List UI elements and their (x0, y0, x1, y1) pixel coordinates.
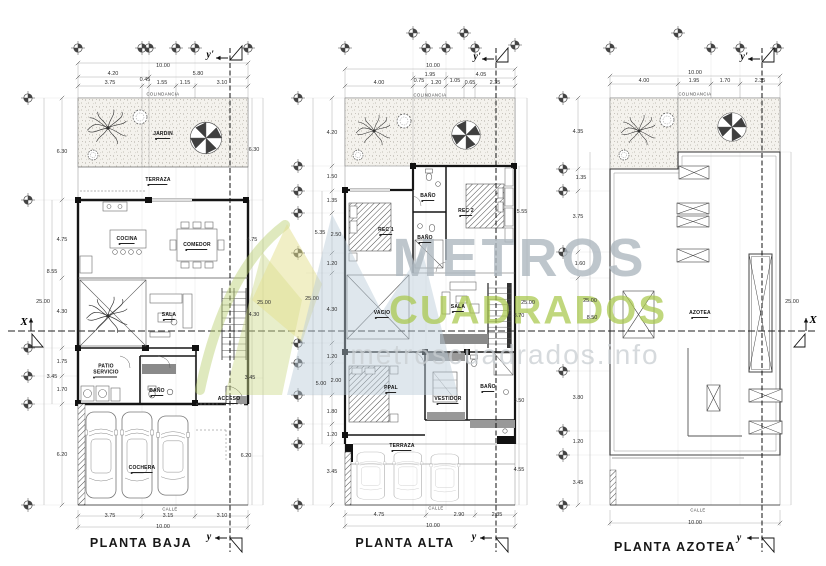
architectural-drawing: METROS CUADRADOS metroscuadrados.info X … (0, 0, 826, 566)
dim-label: 3.75 (573, 214, 584, 220)
dim-label: 25.00 (257, 300, 271, 306)
room-label-cocina: COCINA (117, 236, 138, 242)
dim-label: 4.05 (476, 72, 487, 78)
axis-x-right: X (809, 314, 816, 326)
dim-label: 25.00 (305, 296, 319, 302)
room-label-sala: SALA (162, 312, 176, 318)
plan-title-alta: PLANTA ALTA (355, 536, 454, 550)
colindancia-label: COLINDANCIA (413, 93, 446, 98)
dim-label: 1.35 (576, 175, 587, 181)
dim-label: 1.95 (689, 78, 700, 84)
dim-label: 3.10 (217, 513, 228, 519)
axis-y: y (207, 532, 211, 543)
axis-y: y (472, 532, 476, 543)
dim-label: 2.35 (492, 512, 503, 518)
dim-label: 1.20 (327, 354, 338, 360)
room-label-acceso: ACCESO (218, 396, 241, 402)
room-label-bano: BAÑO (480, 384, 496, 390)
colindancia-label: COLINDANCIA (678, 92, 711, 97)
dim-label: 5.35 (315, 230, 326, 236)
dim-label: 2.35 (755, 78, 766, 84)
dim-label: 1.35 (327, 198, 338, 204)
dim-label: 4.30 (249, 312, 260, 318)
dim-label: 4.30 (57, 309, 68, 315)
room-label-azotea: AZOTEA (689, 310, 711, 316)
dim-label: 2.00 (331, 378, 342, 384)
dim-label: 1.20 (431, 80, 442, 86)
plan-title-baja: PLANTA BAJA (90, 536, 192, 550)
dim-label: 6.30 (57, 149, 68, 155)
room-label-cochera: COCHERA (129, 465, 156, 471)
dim-label: 5.00 (316, 381, 327, 387)
dim-label: 3.75 (105, 513, 116, 519)
dim-label: 0.45 (140, 77, 151, 83)
dim-label: 4.75 (247, 237, 258, 243)
calle-label: CALLE (428, 506, 443, 511)
dim-label: 0.65 (465, 80, 476, 86)
dim-label: 3.10 (217, 80, 228, 86)
dim-label: 1.95 (425, 72, 436, 78)
dim-label: 1.75 (57, 359, 68, 365)
axis-y-prime: y' (206, 50, 213, 61)
dim-label: 1.50 (327, 174, 338, 180)
room-label-sala: SALA (451, 304, 465, 310)
dim-label: 25.00 (583, 298, 597, 304)
dim-label: 3.45 (47, 374, 58, 380)
dim-label: 5.55 (517, 209, 528, 215)
axis-x-left: X (20, 316, 27, 328)
dim-label: 4.00 (639, 78, 650, 84)
dim-label: 2.50 (331, 232, 342, 238)
dim-label: 10.00 (426, 63, 440, 69)
room-label-rec1: REC 1 (378, 227, 394, 233)
dim-label: 1.70 (720, 78, 731, 84)
dim-label: 1.15 (180, 80, 191, 86)
dim-label: 10.00 (156, 524, 170, 530)
dim-label: 10.00 (688, 70, 702, 76)
dim-label: 8.50 (587, 315, 598, 321)
dim-label: 1.60 (575, 261, 586, 267)
dim-label: 0.75 (414, 78, 425, 84)
dim-label: 3.45 (327, 469, 338, 475)
dim-label: 4.75 (57, 237, 68, 243)
dim-label: 1.05 (450, 78, 461, 84)
room-label-terraza: TERRAZA (389, 443, 414, 449)
room-label-bano: BAÑO (149, 388, 165, 394)
dim-label: 25.00 (36, 299, 50, 305)
dim-label: 3.45 (573, 480, 584, 486)
plan-title-azotea: PLANTA AZOTEA (614, 540, 736, 554)
dim-label: 1.70 (57, 387, 68, 393)
dim-label: 25.00 (521, 300, 535, 306)
colindancia-label: COLINDANCIA (146, 92, 179, 97)
dim-label: 3.45 (245, 375, 256, 381)
dim-label: 2.90 (454, 512, 465, 518)
drawing-labels: X X y' y PLANTA BAJA COLINDANCIA CALLE 1… (0, 0, 826, 566)
dim-label: 6.20 (241, 453, 252, 459)
axis-y-prime: y' (740, 52, 747, 63)
dim-label: 4.00 (374, 80, 385, 86)
dim-label: 8.70 (514, 313, 525, 319)
room-label-comedor: COMEDOR (183, 242, 211, 248)
dim-label: 3.80 (573, 395, 584, 401)
dim-label: 4.30 (327, 307, 338, 313)
room-label-bano: BAÑO (417, 235, 433, 241)
room-label-ppal: PPAL (384, 385, 398, 391)
dim-label: 4.20 (108, 71, 119, 77)
dim-label: 10.00 (426, 523, 440, 529)
dim-label: 4.20 (327, 130, 338, 136)
dim-label: 1.20 (327, 261, 338, 267)
room-label-jardin: JARDIN (153, 131, 173, 137)
dim-label: 25.00 (785, 299, 799, 305)
room-label-bano: BAÑO (420, 193, 436, 199)
room-label-terraza: TERRAZA (145, 177, 170, 183)
dim-label: 1.20 (327, 432, 338, 438)
dim-label: 4.55 (514, 467, 525, 473)
dim-label: 1.55 (157, 80, 168, 86)
room-label-vestidor: VESTIDOR (434, 396, 461, 402)
dim-label: 8.55 (47, 269, 58, 275)
dim-label: 4.75 (374, 512, 385, 518)
dim-label: 3.75 (105, 80, 116, 86)
dim-label: 3.15 (163, 513, 174, 519)
dim-label: 3.50 (514, 398, 525, 404)
dim-label: 6.30 (249, 147, 260, 153)
dim-label: 5.80 (193, 71, 204, 77)
dim-label: 1.80 (327, 409, 338, 415)
axis-y-prime: y' (473, 52, 480, 63)
room-label-rec2: REC 2 (458, 208, 474, 214)
room-label-patio-servicio: PATIO SERVICIO (91, 365, 121, 376)
dim-label: 10.00 (688, 520, 702, 526)
calle-label: CALLE (690, 508, 705, 513)
dim-label: 4.35 (573, 129, 584, 135)
dim-label: 2.35 (490, 80, 501, 86)
dim-label: 6.20 (57, 452, 68, 458)
dim-label: 10.00 (156, 63, 170, 69)
dim-label: 1.20 (573, 439, 584, 445)
axis-y: y (737, 533, 741, 544)
calle-label: CALLE (162, 507, 177, 512)
room-label-vacio: VACIO (374, 310, 390, 316)
